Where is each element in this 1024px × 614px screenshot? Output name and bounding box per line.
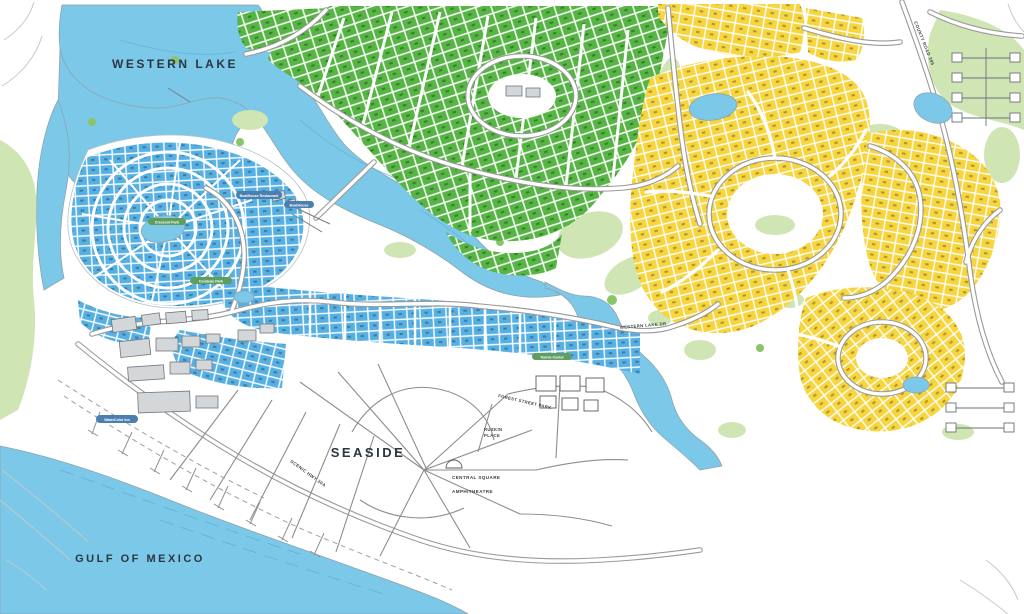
watercolor-inn-pill: WaterColor Inn [96, 415, 138, 423]
map-canvas: WESTERN LAKE SEASIDE GULF OF MEXICO CENT… [0, 0, 1024, 614]
boathouse-pill-label: BoatHouse [290, 203, 309, 207]
cerulean-park-pill: Cerulean Park [190, 277, 232, 284]
community-lot-map: WESTERN LAKE SEASIDE GULF OF MEXICO CENT… [0, 0, 1024, 614]
boathouse-pill: BoatHouse [284, 201, 314, 208]
watercolor-inn-pill-label: WaterColor Inn [104, 418, 130, 422]
town-pond [234, 291, 254, 303]
boathouse-restaurant-pill: BoatHouse Restaurant [236, 191, 282, 199]
crescent-park-pill: Crescent Park [148, 218, 186, 225]
crescent-park-pill-label: Crescent Park [155, 220, 179, 224]
cerulean-park-pill-label: Cerulean Park [199, 279, 223, 283]
western-lake-label: WESTERN LAKE [112, 57, 238, 71]
tennis-center-pill-label: Tennis Center [540, 355, 564, 359]
loop-interior-green [755, 215, 795, 235]
ruskin-place-label-line2: PLACE [484, 433, 500, 438]
tennis-center-pill: Tennis Center [532, 353, 572, 360]
boathouse-restaurant-pill-label: BoatHouse Restaurant [240, 194, 280, 198]
scenic-hwy-30a-label: SCENIC HWY 30A [289, 459, 327, 488]
central-square-label: CENTRAL SQUARE [452, 475, 500, 480]
yellow-north-strip-district [658, 4, 805, 57]
yellow-se-loop-interior [856, 338, 908, 378]
southeast-pond [903, 377, 929, 393]
seaside-label: SEASIDE [331, 445, 406, 460]
gulf-of-mexico-label: GULF OF MEXICO [75, 553, 205, 565]
amphitheatre-label: AMPHITHEATRE [452, 489, 493, 494]
ruskin-place-label-line1: RUSKIN [484, 427, 502, 432]
yellow-central-loop-interior [727, 174, 823, 254]
lake-south-arm-water [37, 100, 70, 290]
southeast-condo-blocks [946, 383, 1014, 432]
